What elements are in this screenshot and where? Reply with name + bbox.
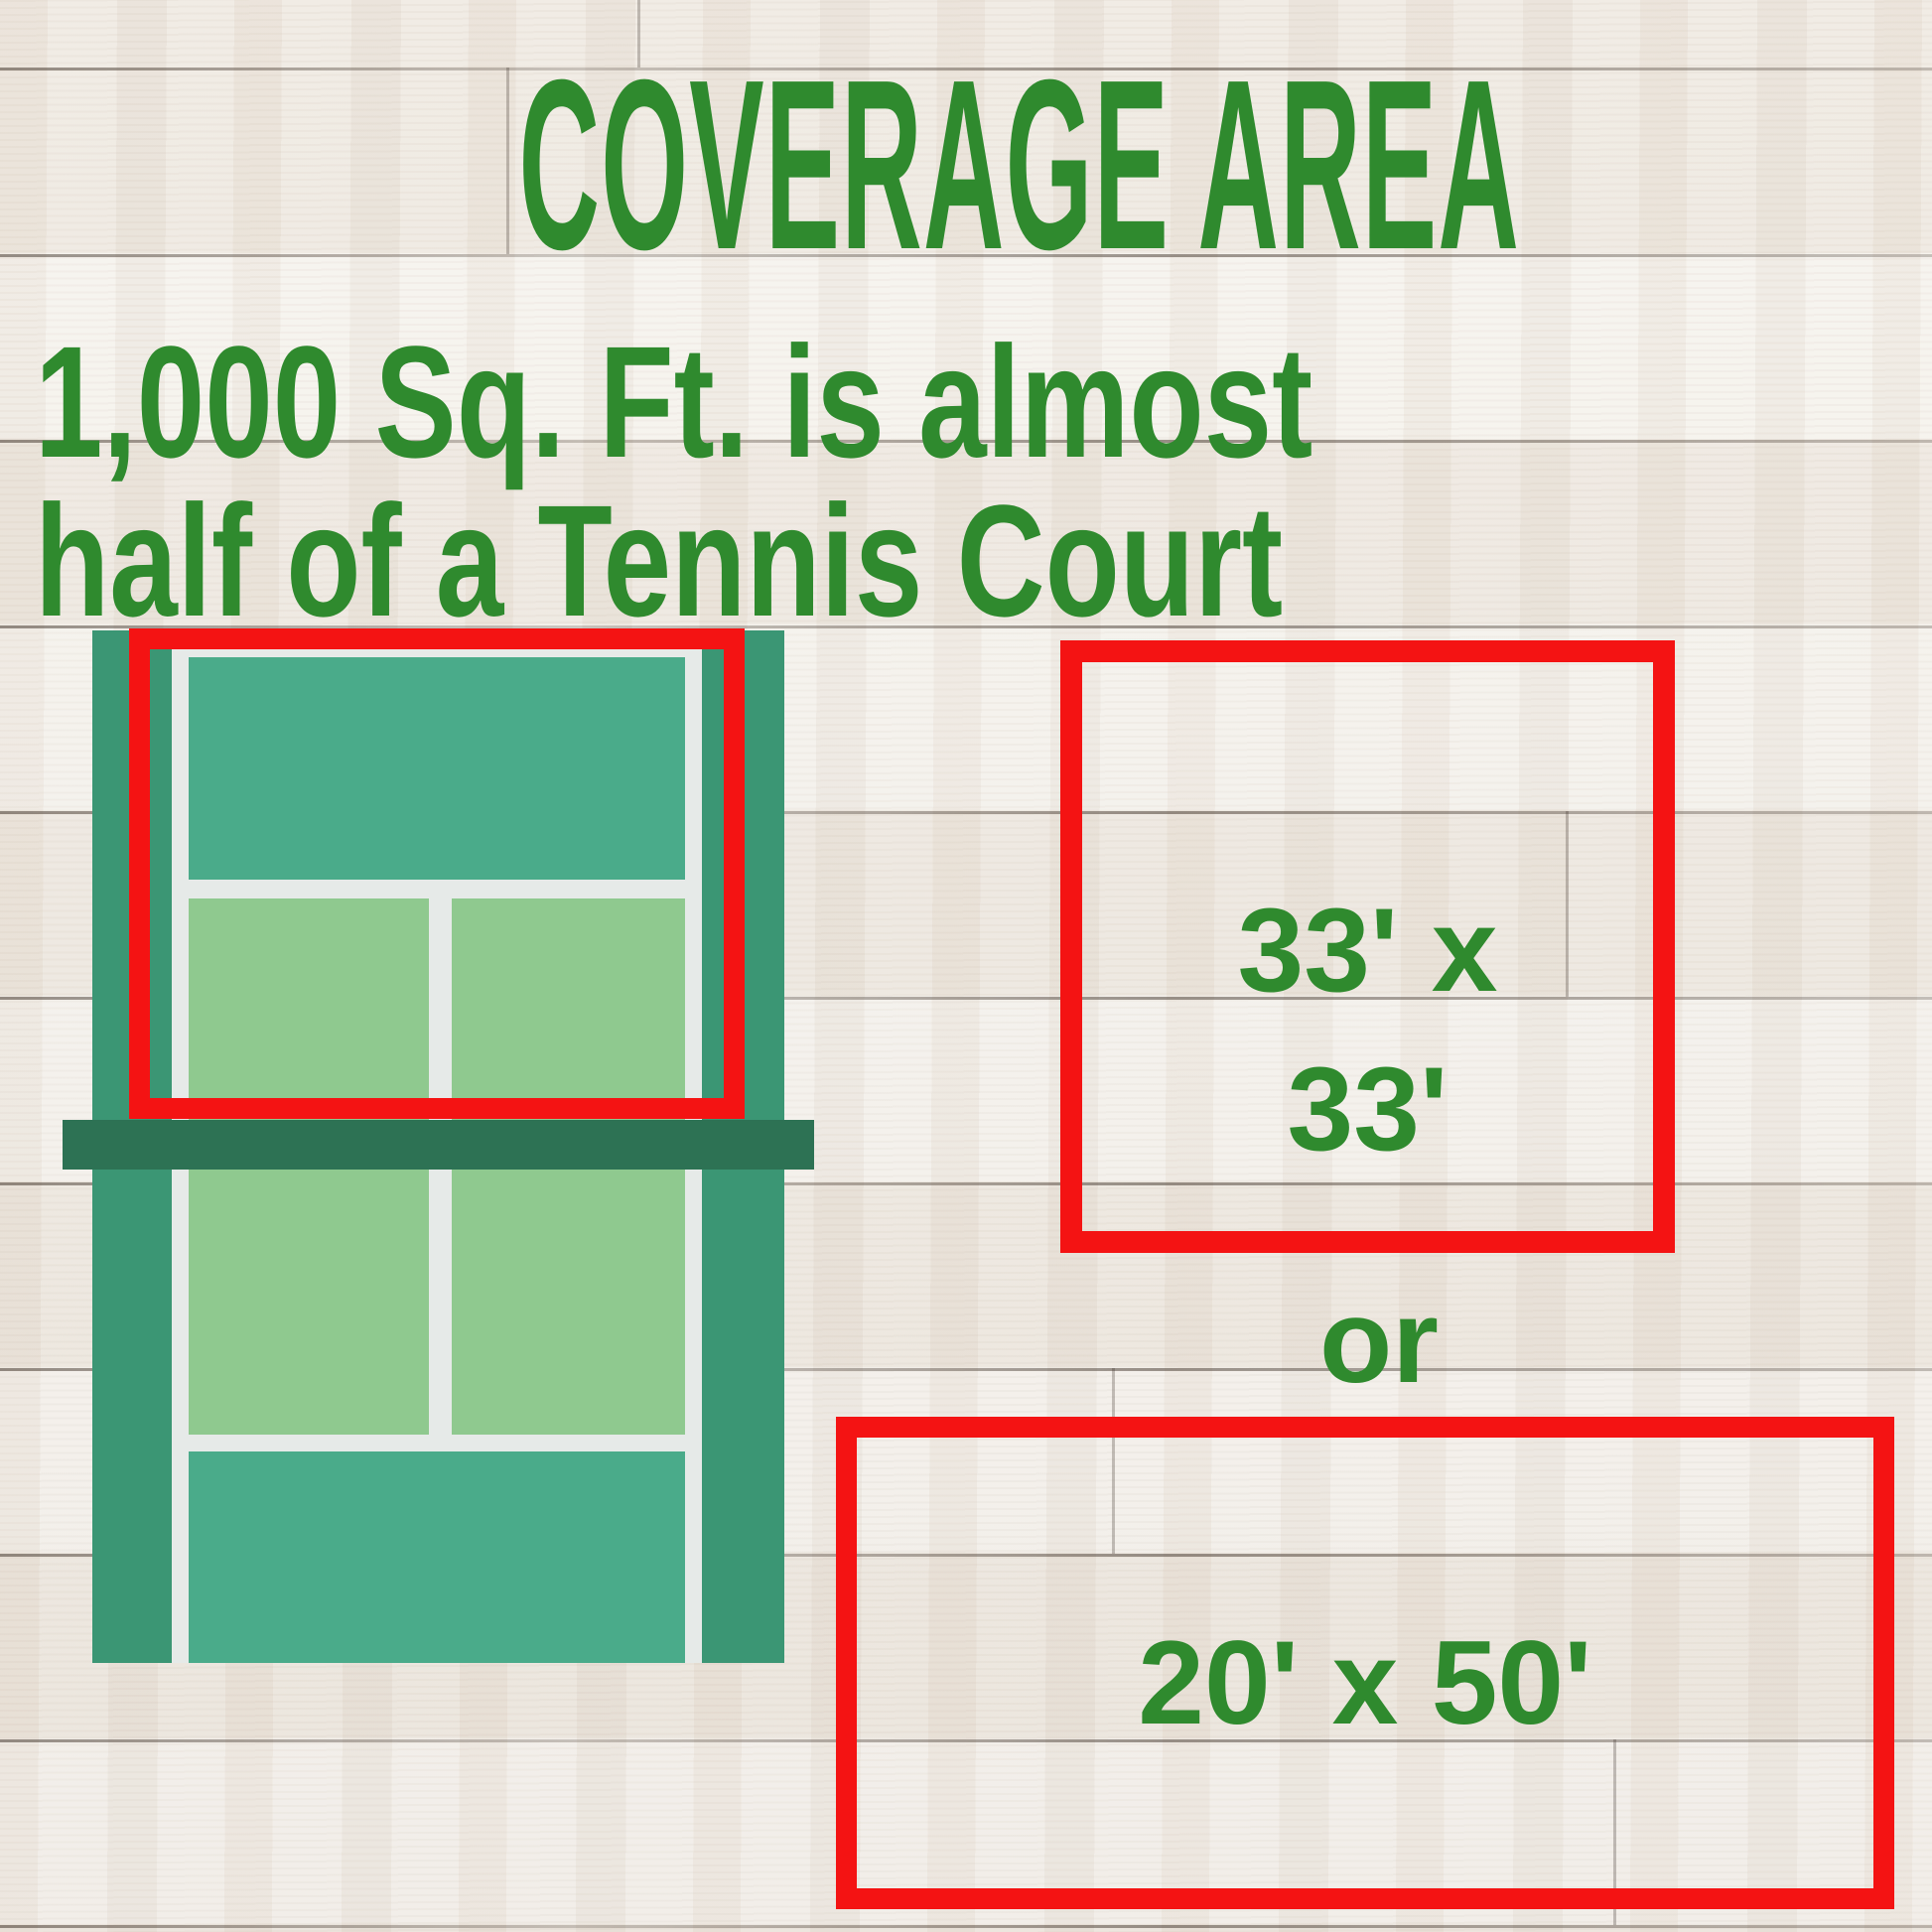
subtitle-line-2: half of a Tennis Court [35, 482, 1312, 640]
half-court-highlight-outline [129, 628, 745, 1119]
court-backcourt-bottom [189, 1451, 685, 1663]
court-service-box-bottom-right [452, 1170, 685, 1435]
page-title: COVERAGE AREA [519, 44, 1414, 286]
wood-plank-joint [506, 68, 509, 254]
square-dimension-label: 33' x 33' [1082, 871, 1653, 1188]
coverage-area-infographic: COVERAGE AREA 1,000 Sq. Ft. is almost ha… [0, 0, 1932, 1932]
square-dimension-line-1: 33' x [1082, 871, 1653, 1030]
wood-plank-seam [0, 1925, 1932, 1928]
subtitle-line-1: 1,000 Sq. Ft. is almost [35, 323, 1312, 482]
tennis-net-band [63, 1120, 814, 1170]
rectangle-dimension-label: 20' x 50' [857, 1623, 1873, 1742]
rectangle-area-outline: 20' x 50' [836, 1417, 1894, 1909]
square-dimension-line-2: 33' [1082, 1030, 1653, 1188]
subtitle: 1,000 Sq. Ft. is almost half of a Tennis… [35, 323, 1312, 640]
conjunction-or: or [1230, 1282, 1528, 1401]
square-area-outline: 33' x 33' [1060, 640, 1675, 1253]
court-service-box-bottom-left [189, 1170, 429, 1435]
